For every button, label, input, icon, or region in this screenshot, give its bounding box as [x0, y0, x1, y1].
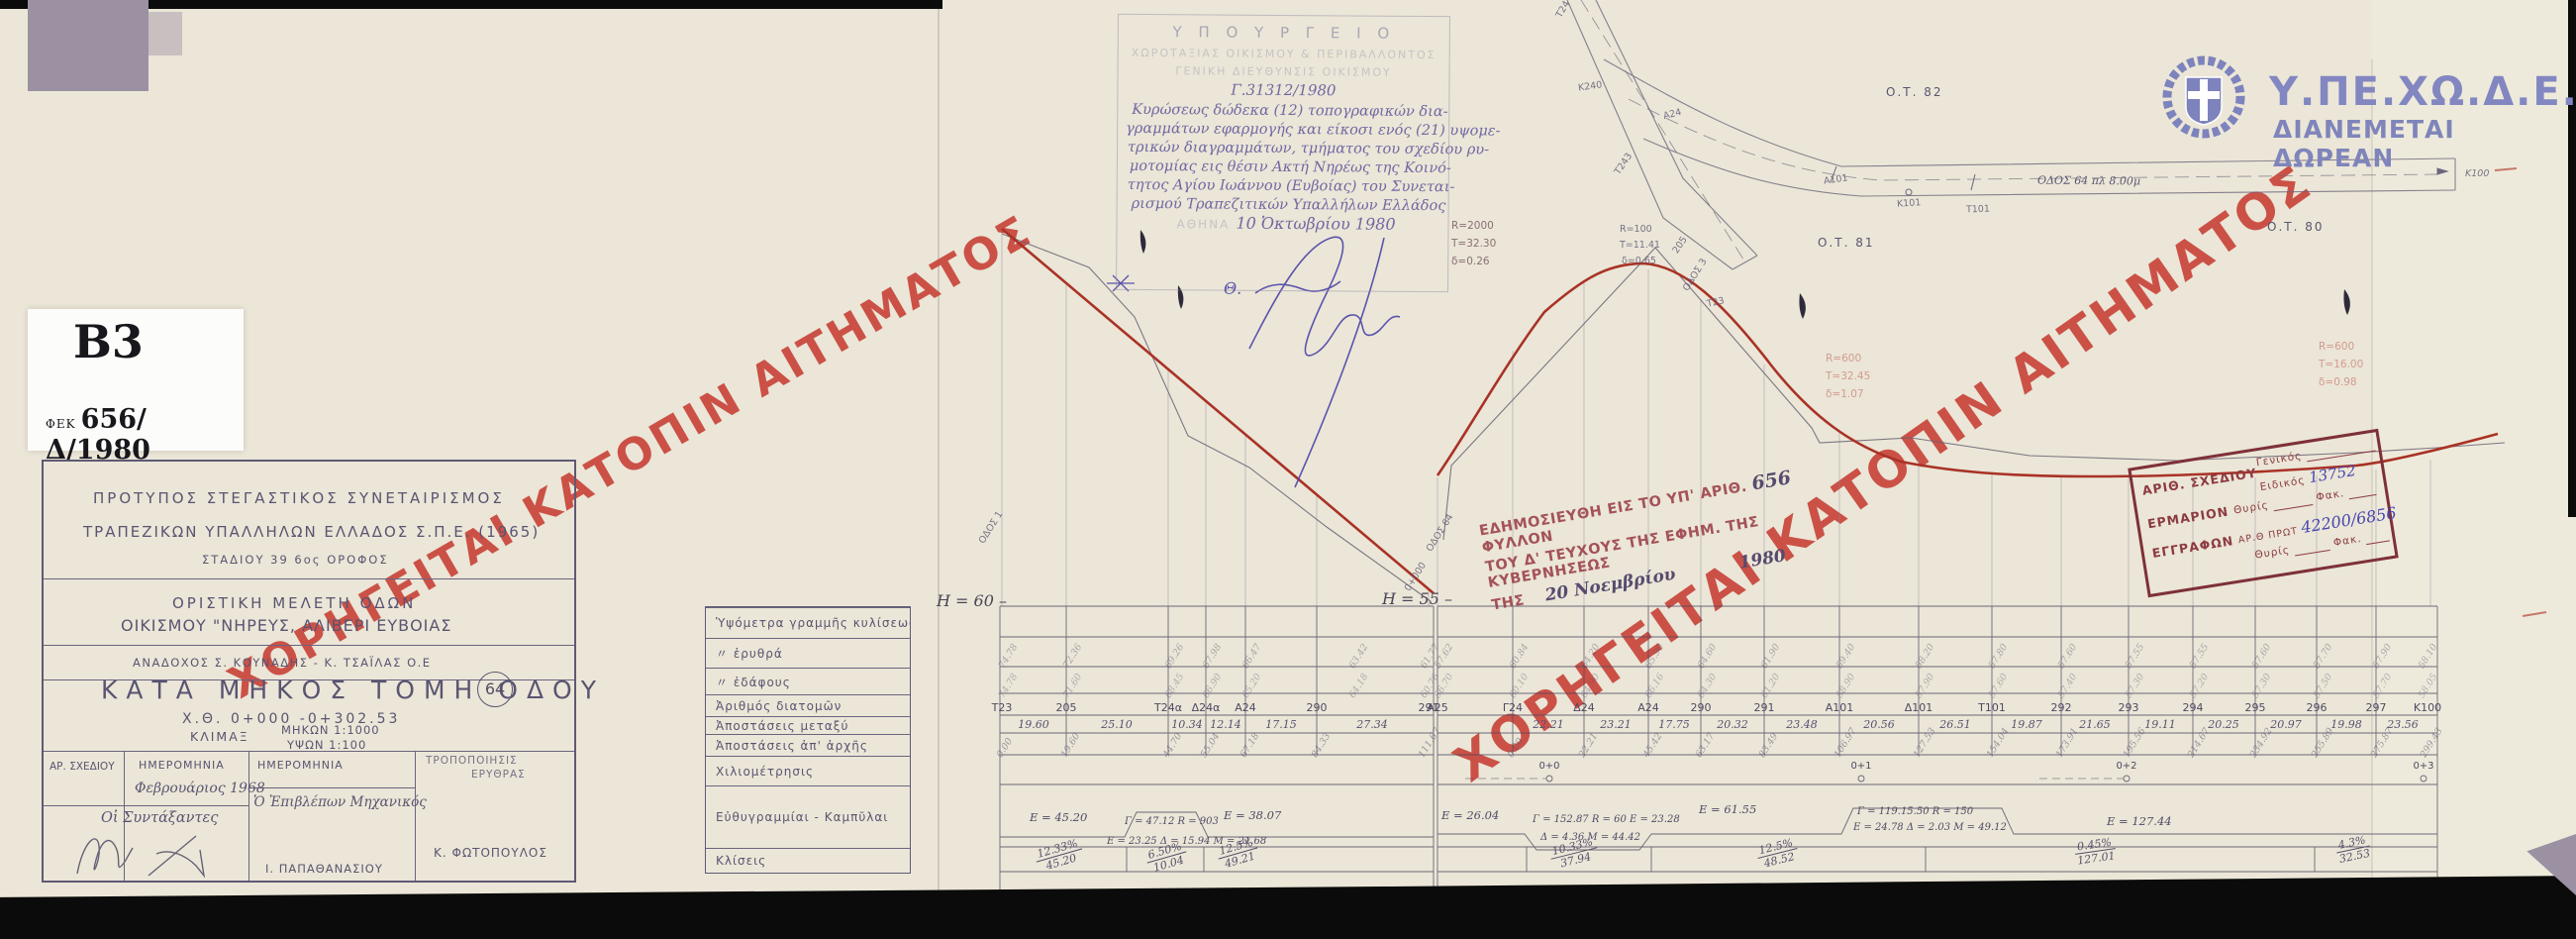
special-value: 13752	[2308, 462, 2357, 486]
engineer-name: Ι. ΠΑΠΑΘΑΝΑΣΙΟΥ	[265, 862, 383, 876]
legend-row: Ἀποστάσεις μεταξύ	[706, 716, 910, 734]
date-value: Φεβρουάριος 1968	[135, 781, 265, 796]
plan-marker-label: Τ=11.41	[1620, 240, 1660, 251]
hectometer-label: 0+2	[2116, 761, 2136, 772]
right-curve-e1: E = 26.04	[1441, 808, 1499, 822]
ministry-line2: ΧΩΡΟΤΑΞΙΑΣ ΟΙΚΙΣΜΟΥ & ΠΕΡΙΒΑΛΛΟΝΤΟΣ	[1119, 47, 1449, 61]
station-label: Τ24α	[1154, 701, 1182, 714]
left-note-r: R=2000	[1451, 220, 1494, 232]
right-note-d: δ=1.07	[1826, 388, 1864, 400]
plan-note2-t: Τ=16.00	[2319, 359, 2363, 370]
plan-marker-label: Τ101	[1966, 204, 1990, 216]
station-label: Α25	[1427, 701, 1448, 714]
distance-value: 20.97	[2270, 718, 2302, 731]
col-date: ΗΜΕΡΟΜΗΝΙΑ	[139, 759, 225, 772]
hand-line4: μοτομίας εις θέσιν Ακτή Νηρέως της Κοινό…	[1130, 158, 1451, 176]
org-line1: ΠΡΟΤΥΠΟΣ ΣΤΕΓΑΣΤΙΚΟΣ ΣΥΝΕΤΑΙΡΙΣΜΟΣ	[93, 489, 505, 507]
right-note-r: R=600	[1826, 353, 1861, 365]
road3-end-cap	[1733, 256, 1757, 269]
thyris-label: Θυρίς	[2232, 499, 2269, 516]
distance-value: 26.51	[1939, 718, 1971, 731]
station-label: Α24	[1637, 701, 1659, 714]
distance-value: 20.56	[1863, 718, 1895, 731]
col-drawing-no: ΑΡ. ΣΧΕΔΙΟΥ	[50, 761, 115, 773]
distance-value: 17.75	[1658, 718, 1690, 731]
ministry-line3: ΓΕΝΙΚΗ ΔΙΕΥΘΥΝΣΙΣ ΟΙΚΙΣΜΟΥ	[1119, 64, 1449, 79]
modifier-name: Κ. ΦΩΤΟΠΟΥΛΟΣ	[434, 846, 547, 860]
ministry-city: ΑΘΗΝΑ	[1176, 217, 1230, 231]
distance-value: 10.34	[1171, 718, 1203, 731]
legend-row: 〃 ἐδάφους	[706, 668, 910, 694]
study-line1: ΟΡΙΣΤΙΚΗ ΜΕΛΕΤΗ ΟΔΩΝ	[172, 594, 416, 612]
station-label: Κ100	[2414, 701, 2441, 714]
station-label: Δ101	[1905, 701, 1933, 714]
legend-row: Ἀριθμός διατομῶν	[706, 694, 910, 716]
left-curve-g1: Γ = 47.12 R = 903	[1125, 816, 1219, 827]
road-number-circle: 64	[477, 672, 513, 707]
station-label: Γ24	[1503, 701, 1523, 714]
left-note-d: δ=0.26	[1451, 256, 1490, 267]
title-block: ΠΡΟΤΥΠΟΣ ΣΤΕΓΑΣΤΙΚΟΣ ΣΥΝΕΤΑΙΡΙΣΜΟΣ ΤΡΑΠΕ…	[42, 460, 576, 883]
legend-row: Ἀποστάσεις ἀπ' ἀρχῆς	[706, 734, 910, 756]
special-label: Ειδικός	[2259, 474, 2306, 493]
left-datum-label: H = 60 –	[937, 591, 1007, 610]
hand-line5: τητος Αγίου Ιωάννου (Ευβοίας) του Συνετα…	[1128, 177, 1455, 195]
right-note-t: Τ=32.45	[1826, 370, 1870, 382]
left-curve-e1: E = 45.20	[1030, 810, 1087, 824]
fak-label-2: Φακ.	[2332, 533, 2362, 549]
right-curve-e2: E = 61.55	[1699, 802, 1756, 816]
left-curve-e2: E = 38.07	[1224, 808, 1281, 822]
plan-marker-label: Κ101	[1897, 197, 1922, 210]
drawing-title: ΚΑΤΑ ΜΗΚΟΣ ΤΟΜΗ ΟΔΟΥ	[101, 676, 605, 704]
ministry-date: 10 Ὀκτωβρίου 1980	[1236, 214, 1395, 234]
distance-value: 19.98	[2330, 718, 2362, 731]
cross-vertical	[2200, 79, 2208, 121]
station-label: 205	[1056, 701, 1077, 714]
scale-word: ΚΛΙΜΑΞ	[190, 729, 249, 744]
profile-legend: Ὑψόμετρα γραμμῆς κυλίσεως〃 ἐρυθρά〃 ἐδάφο…	[705, 606, 911, 874]
hectometer-label: 0+1	[1850, 761, 1871, 772]
col-modification: ΤΡΟΠΟΠΟΙΗΣΙΣ	[426, 755, 518, 767]
hectometer-label: 0+0	[1538, 761, 1559, 772]
station-label: 291	[1754, 701, 1775, 714]
scale-lengths: ΜΗΚΩΝ 1:1000	[281, 723, 380, 737]
hand-line6: ρισμού Τραπεζιτικών Υπαλλήλων Ελλάδος	[1132, 196, 1446, 214]
plan-note2-d: δ=0.98	[2319, 376, 2357, 388]
ypexode-logo-subtitle: ΔΙΑΝΕΜΕΤΑΙ ΔΩΡΕΑΝ	[2273, 115, 2576, 172]
protocol-number: Γ.31312/1980	[1118, 80, 1448, 100]
distance-value: 23.48	[1786, 718, 1818, 731]
city-block-label: Ο.Τ. 80	[2267, 220, 2325, 234]
right-curve-e3: E = 127.44	[2107, 814, 2172, 828]
fek-line: ΦΕΚ 656/Δ/1980	[46, 404, 244, 466]
slope-fraction: 0.45% 127.01	[2073, 835, 2117, 867]
authors-label: Οἱ Συντάξαντες	[101, 810, 218, 826]
greek-coat-of-arms	[2167, 60, 2240, 134]
plan-marker-label: R=100	[1620, 224, 1652, 235]
col-modification-2: ΕΡΥΘΡΑΣ	[471, 769, 526, 781]
generic-label: Γενικός	[2255, 450, 2303, 469]
station-label: 294	[2183, 701, 2204, 714]
station-label: 295	[2245, 701, 2266, 714]
station-label: Δ24α	[1192, 701, 1221, 714]
distance-value: 19.11	[2144, 718, 2176, 731]
station-label: 290	[1307, 701, 1328, 714]
study-line2: ΟΙΚΙΣΜΟΥ "ΝΗΡΕΥΣ, ΑΛΙΒΕΡΙ ΕΥΒΟΙΑΣ	[121, 616, 451, 635]
city-block-label: Ο.Τ. 82	[1886, 85, 1943, 99]
fak-label: Φακ.	[2316, 487, 2345, 503]
city-block-label: Ο.Τ. 81	[1818, 236, 1875, 250]
distance-value: 27.34	[1356, 718, 1388, 731]
contractor-line: ΑΝΑΔΟΧΟΣ Σ. ΚΟΥΝΑΔΗΣ - Κ. ΤΣΑΪΛΑΣ Ο.Ε	[133, 656, 432, 670]
distance-value: 25.10	[1101, 718, 1133, 731]
generic-blank	[2306, 439, 2376, 463]
hand-line3: τρικών διαγραμμάτων, τμήματος του σχεδίο…	[1128, 140, 1489, 158]
org-line3: ΣΤΑΔΙΟΥ 39 6ος ΟΡΟΦΟΣ	[202, 553, 389, 567]
distance-value: 23.21	[1600, 718, 1632, 731]
archive-row3-label: ΕΓΓΡΑΦΩΝ	[2151, 533, 2234, 561]
distance-value: 20.25	[2208, 718, 2239, 731]
station-label: 292	[2051, 701, 2072, 714]
distance-value: 22.21	[1533, 718, 1564, 731]
col-date-2: ΗΜΕΡΟΜΗΝΙΑ	[257, 759, 344, 772]
hand-line2: γραμμάτων εφαρμογής και είκοσι ενός (21)…	[1126, 121, 1500, 140]
plan-note2-r: R=600	[2319, 341, 2354, 353]
station-label: Τ101	[1978, 701, 2006, 714]
fek-corner-label: B3 ΦΕΚ 656/Δ/1980	[28, 309, 244, 451]
legend-row: Χιλιομέτρησις	[706, 756, 910, 785]
legend-row: 〃 ἐρυθρά	[706, 638, 910, 668]
org-line2: ΤΡΑΠΕΖΙΚΩΝ ΥΠΑΛΛΗΛΩΝ ΕΛΛΑΔΟΣ Σ.Π.Ε. (196…	[83, 523, 540, 541]
cross-horizontal	[2188, 91, 2220, 99]
ypexode-logo-title: Υ.ΠΕ.ΧΩ.Δ.Ε.	[2269, 69, 2576, 115]
right-datum-label: H = 55 –	[1382, 589, 1452, 608]
right-curve-c1a: Γ = 152.87 R = 60 E = 23.28	[1533, 814, 1680, 825]
left-note-t: Τ=32.30	[1451, 238, 1496, 250]
station-label: Α24	[1235, 701, 1256, 714]
legend-row: Ὑψόμετρα γραμμῆς κυλίσεως	[706, 607, 910, 638]
station-label: 290	[1691, 701, 1712, 714]
station-label: 297	[2366, 701, 2387, 714]
archive-row2-label: ΕΡΜΑΡΙΟΝ	[2146, 504, 2229, 532]
distance-value: 19.87	[2011, 718, 2042, 731]
thyris-label-2: Θυρίς	[2254, 544, 2291, 561]
signer-initial: Θ.	[1224, 279, 1241, 298]
supervisor-label: Ὁ Ἐπιβλέπων Μηχανικός	[253, 794, 427, 810]
station-label: 296	[2307, 701, 2328, 714]
fek-prefix: ΦΕΚ	[46, 417, 76, 431]
distance-value: 17.15	[1265, 718, 1297, 731]
fek-number: 656/Δ/1980	[46, 404, 150, 466]
road3-centerline	[1581, 0, 1745, 262]
plan-marker-label: δ=0.65	[1622, 256, 1656, 266]
red-marks	[2495, 168, 2546, 616]
hand-line1: Κυρώσεως δώδεκα (12) τοπογραφικών δια-	[1132, 102, 1447, 120]
scanned-road-profile-sheet: ΧΟΡΗΓΕΙΤΑΙ ΚΑΤΟΠΙΝ ΑΙΤΗΜΑΤΟΣ ΧΟΡΗΓΕΙΤΑΙ …	[0, 0, 2576, 939]
station-label: Δ24	[1573, 701, 1595, 714]
scale-heights: ΥΨΩΝ 1:100	[287, 738, 366, 752]
ministry-line1: Υ Π Ο Υ Ρ Γ Ε Ι Ο	[1119, 23, 1449, 43]
right-curve-c2b: E = 24.78 Δ = 2.03 M = 49.12	[1853, 822, 2007, 833]
ministry-stamp: Υ Π Ο Υ Ρ Γ Ε Ι Ο ΧΩΡΟΤΑΞΙΑΣ ΟΙΚΙΣΜΟΥ & …	[1116, 14, 1450, 292]
right-curve-c2a: Γ = 119.15.50 R = 150	[1857, 806, 1973, 817]
archive-row1-label: ΑΡΙΘ. ΣΧΕΔΙΟΥ	[2141, 466, 2258, 498]
distance-value: 19.60	[1018, 718, 1049, 731]
distance-value: 20.32	[1717, 718, 1748, 731]
road64-end-label: Κ100	[2465, 168, 2489, 179]
legend-row: Εὐθυγραμμίαι - Καμπῦλαι	[706, 785, 910, 848]
hectometer-label: 0+3	[2413, 761, 2433, 772]
distance-value: 21.65	[2079, 718, 2111, 731]
legend-row: Κλίσεις	[706, 848, 910, 873]
station-label: Τ23	[992, 701, 1013, 714]
distance-value: 12.14	[1210, 718, 1241, 731]
road64-label: ΟΔΟΣ 64 πλ 8.00μ	[2037, 174, 2140, 188]
station-label: Α101	[1826, 701, 1854, 714]
station-label: 293	[2119, 701, 2139, 714]
sheet-code: B3	[73, 315, 144, 368]
